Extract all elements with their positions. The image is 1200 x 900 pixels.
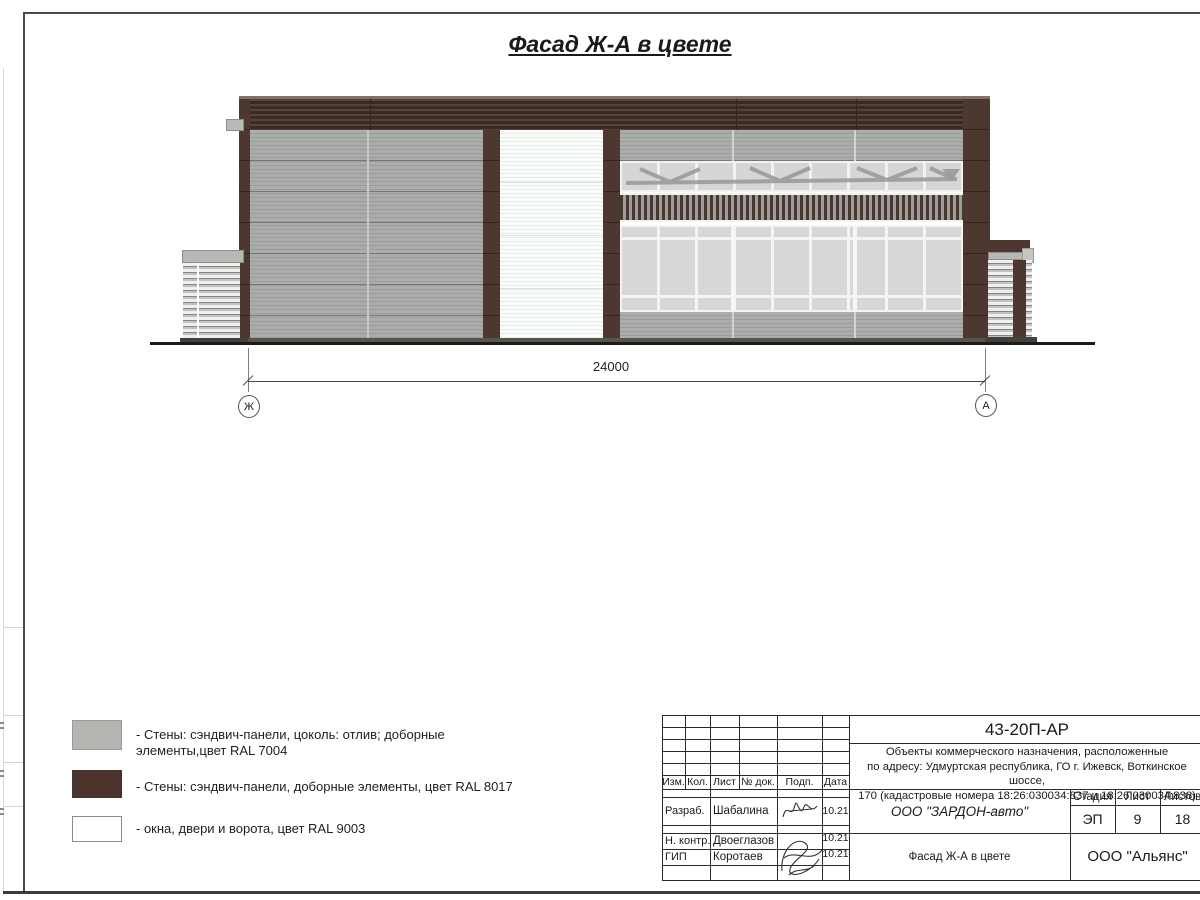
right-fence-louvers	[988, 260, 1013, 337]
facade-strip-seam	[854, 130, 856, 161]
tb-stage-label: Стадия	[1070, 789, 1115, 805]
dimension-line	[248, 381, 985, 382]
tb-description-line: Объекты коммерческого назначения, распол…	[849, 745, 1200, 760]
margin-divider	[3, 806, 23, 807]
signature-dvoeglazov-korotaev	[777, 831, 825, 878]
tb-line	[662, 825, 849, 826]
dim-extension-line-right	[985, 348, 986, 392]
tb-company: ООО "ЗАРДОН-авто"	[849, 789, 1070, 833]
tb-col-doc: № док.	[739, 775, 777, 789]
facade-corner-pilaster-left	[239, 99, 250, 344]
right-fence-post	[1013, 260, 1026, 337]
legend-swatch-ral7004	[72, 720, 122, 750]
tb-date: 10.21	[822, 797, 849, 825]
tb-line	[662, 715, 1200, 716]
dim-extension-line-left	[248, 348, 249, 392]
facade-base-strip	[620, 312, 963, 338]
facade-wall-seam	[367, 130, 369, 338]
dimension-value: 24000	[531, 358, 691, 374]
tb-line	[662, 763, 849, 764]
tb-role-gip: ГИП	[665, 849, 717, 865]
page-title: Фасад Ж-А в цвете	[340, 30, 900, 58]
tb-line	[662, 727, 849, 728]
legend-label-ral7004: - Стены: сэндвич-панели, цоколь: отлив; …	[136, 727, 481, 759]
left-fence-cap	[182, 250, 244, 263]
tb-line	[662, 739, 849, 740]
tb-description-line: по адресу: Удмуртская республика, ГО г. …	[849, 760, 1200, 789]
margin-stamp-mark	[0, 770, 4, 772]
tb-line	[849, 743, 1200, 744]
legend-swatch-ral9003	[72, 816, 122, 842]
tb-line	[662, 715, 663, 880]
tb-org: ООО "Альянс"	[1070, 833, 1200, 880]
left-fence-base	[180, 338, 248, 342]
tb-line	[662, 880, 1200, 881]
frame-left-border	[23, 12, 25, 892]
facade-top-band-ral8017	[239, 99, 990, 130]
facade-pilaster	[483, 130, 500, 344]
tb-col-kol: Кол.	[685, 775, 710, 789]
roof-truss-silhouette	[622, 163, 961, 190]
margin-column-line	[3, 68, 4, 891]
right-fence-louvers-return	[1026, 260, 1032, 337]
facade-flashing-tab	[226, 119, 244, 131]
facade-gate-ral9003	[500, 130, 603, 344]
tb-doc-number: 43-20П-АР	[849, 718, 1200, 742]
axis-marker-a: А	[975, 394, 997, 417]
tb-sheets-label: Листов	[1160, 789, 1200, 805]
facade-band-seam	[736, 99, 737, 130]
facade-strip-seam	[732, 130, 734, 161]
tb-name-dvoeglazov: Двоеглазов	[713, 833, 775, 849]
margin-stamp-mark	[0, 722, 4, 724]
legend-label-ral9003: - окна, двери и ворота, цвет RAL 9003	[136, 821, 606, 837]
signature-shabalina	[780, 795, 820, 827]
legend-swatch-ral8017	[72, 770, 122, 798]
facade-strip-seam	[854, 312, 856, 338]
facade-pilaster	[603, 130, 620, 344]
axis-marker-zh: Ж	[238, 395, 260, 418]
facade-upper-strip	[620, 130, 963, 161]
facade-mullion-major	[853, 225, 857, 312]
frame-top-border	[23, 12, 1200, 14]
tb-name-shabalina: Шабалина	[713, 797, 775, 825]
legend-label-ral8017: - Стены: сэндвич-панели, доборные элемен…	[136, 779, 606, 795]
tb-role-razrab: Разраб.	[665, 797, 709, 825]
right-fence-base	[985, 337, 1037, 342]
facade-band-seam	[370, 99, 371, 130]
margin-stamp-mark	[0, 775, 4, 777]
facade-clerestory-windows	[620, 161, 963, 192]
tb-sheets-value: 18	[1160, 805, 1200, 833]
ground-line	[150, 342, 1095, 345]
frame-bottom-border	[3, 891, 1200, 894]
tb-role-nkontr: Н. контр.	[665, 833, 717, 849]
left-fence-louvers	[199, 263, 240, 339]
tb-sheet-label: Лист	[1115, 789, 1160, 805]
tb-col-data: Дата	[822, 775, 849, 789]
drawing-sheet: Фасад Ж-А в цвете	[0, 0, 1200, 900]
margin-stamp-mark	[0, 808, 4, 810]
facade-window-wall-ral9003	[620, 225, 963, 312]
margin-divider	[3, 762, 23, 763]
margin-stamp-mark	[0, 727, 4, 729]
tb-date: 10.21	[822, 831, 849, 845]
margin-divider	[3, 627, 23, 628]
tb-col-izm: Изм.	[662, 775, 685, 789]
tb-sheet-value: 9	[1115, 805, 1160, 833]
margin-stamp-mark	[0, 813, 4, 815]
tb-date: 10.21	[822, 847, 849, 861]
tb-line	[662, 751, 849, 752]
tb-col-list: Лист	[710, 775, 739, 789]
facade-mullion-major	[731, 225, 735, 312]
tb-stage-value: ЭП	[1070, 805, 1115, 833]
facade-louver-band	[620, 193, 963, 222]
left-fence-louvers	[183, 263, 197, 339]
facade-corner-pilaster-right	[963, 99, 990, 344]
tb-name-korotaev: Коротаев	[713, 849, 775, 865]
tb-sheet-title: Фасад Ж-А в цвете	[849, 833, 1070, 880]
margin-divider	[3, 715, 23, 716]
facade-band-seam	[856, 99, 857, 130]
tb-col-podp: Подп.	[777, 775, 822, 789]
facade-strip-seam	[732, 312, 734, 338]
